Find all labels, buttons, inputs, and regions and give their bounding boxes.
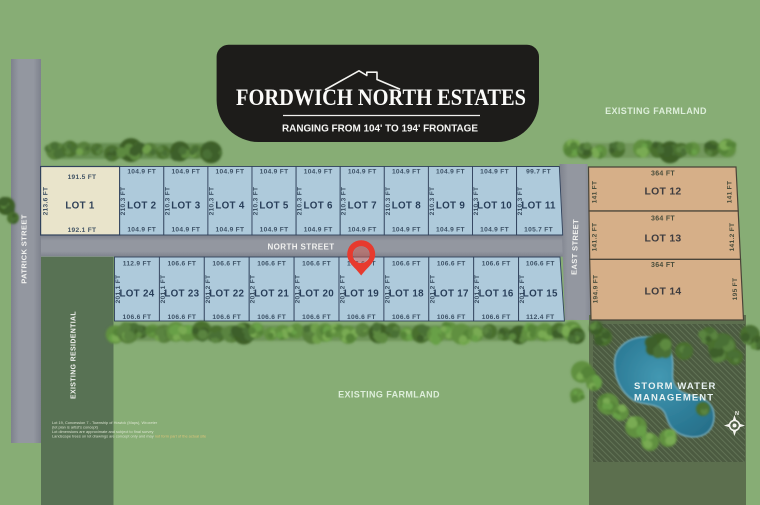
- svg-text:LOT 4: LOT 4: [215, 201, 245, 212]
- svg-text:364 FT: 364 FT: [651, 262, 675, 269]
- svg-text:LOT 5: LOT 5: [259, 201, 289, 212]
- svg-text:104.9 FT: 104.9 FT: [348, 227, 377, 234]
- svg-text:106.6 FT: 106.6 FT: [526, 261, 555, 268]
- svg-text:LOT 22: LOT 22: [209, 289, 244, 300]
- svg-text:106.6 FT: 106.6 FT: [392, 314, 421, 321]
- svg-text:104.9 FT: 104.9 FT: [392, 227, 421, 234]
- svg-text:Landscape trees on lot drawing: Landscape trees on lot drawings are conc…: [52, 434, 206, 439]
- svg-text:LOT 16: LOT 16: [479, 289, 514, 300]
- svg-text:NORTH STREET: NORTH STREET: [267, 243, 334, 252]
- svg-text:LOT 8: LOT 8: [392, 201, 422, 212]
- svg-text:LOT 24: LOT 24: [119, 289, 154, 300]
- svg-text:106.6 FT: 106.6 FT: [257, 261, 286, 268]
- svg-text:LOT 17: LOT 17: [434, 289, 469, 300]
- svg-text:104.9 FT: 104.9 FT: [436, 227, 465, 234]
- svg-text:104.9 FT: 104.9 FT: [216, 169, 245, 176]
- svg-text:FORDWICH NORTH ESTATES: FORDWICH NORTH ESTATES: [236, 85, 526, 111]
- svg-text:104.9 FT: 104.9 FT: [436, 169, 465, 176]
- svg-text:STORM WATER: STORM WATER: [634, 381, 716, 392]
- svg-text:99.7 FT: 99.7 FT: [526, 169, 551, 176]
- svg-text:106.6 FT: 106.6 FT: [123, 314, 152, 321]
- svg-text:104.9 FT: 104.9 FT: [260, 169, 289, 176]
- svg-text:104.9 FT: 104.9 FT: [480, 169, 509, 176]
- svg-text:141 FT: 141 FT: [727, 181, 734, 204]
- svg-text:141.2 FT: 141.2 FT: [592, 223, 599, 252]
- svg-text:106.6 FT: 106.6 FT: [392, 261, 421, 268]
- svg-text:LOT 3: LOT 3: [171, 201, 201, 212]
- svg-text:104.9 FT: 104.9 FT: [304, 227, 333, 234]
- svg-text:EXISTING RESIDENTIAL: EXISTING RESIDENTIAL: [71, 311, 78, 399]
- svg-text:106.6 FT: 106.6 FT: [212, 314, 241, 321]
- svg-text:LOT 2: LOT 2: [127, 201, 157, 212]
- svg-text:LOT 23: LOT 23: [164, 289, 199, 300]
- svg-text:106.6 FT: 106.6 FT: [482, 314, 511, 321]
- svg-text:112.4 FT: 112.4 FT: [526, 314, 554, 321]
- svg-text:LOT 14: LOT 14: [644, 287, 681, 298]
- svg-text:LOT 7: LOT 7: [348, 201, 378, 212]
- svg-text:104.9 FT: 104.9 FT: [127, 227, 156, 234]
- svg-text:104.9 FT: 104.9 FT: [260, 227, 289, 234]
- svg-text:106.6 FT: 106.6 FT: [167, 314, 196, 321]
- svg-text:LOT 10: LOT 10: [477, 201, 512, 212]
- svg-text:106.6 FT: 106.6 FT: [302, 261, 331, 268]
- svg-text:106.6 FT: 106.6 FT: [437, 314, 466, 321]
- svg-text:106.6 FT: 106.6 FT: [167, 261, 196, 268]
- svg-text:104.9 FT: 104.9 FT: [304, 169, 333, 176]
- svg-text:104.9 FT: 104.9 FT: [171, 169, 200, 176]
- svg-text:LOT 9: LOT 9: [436, 201, 466, 212]
- svg-text:LOT 12: LOT 12: [644, 187, 681, 198]
- svg-text:194.9 FT: 194.9 FT: [593, 275, 600, 304]
- svg-text:106.6 FT: 106.6 FT: [302, 314, 331, 321]
- svg-text:106.6 FT: 106.6 FT: [212, 261, 241, 268]
- svg-text:RANGING FROM 104' TO 194' FRON: RANGING FROM 104' TO 194' FRONTAGE: [282, 124, 479, 135]
- svg-text:N: N: [735, 411, 739, 417]
- svg-text:104.9 FT: 104.9 FT: [392, 169, 421, 176]
- svg-text:191.5 FT: 191.5 FT: [68, 174, 97, 181]
- svg-text:LOT 11: LOT 11: [521, 201, 556, 212]
- svg-text:141 FT: 141 FT: [592, 181, 599, 204]
- svg-text:EXISTING FARMLAND: EXISTING FARMLAND: [605, 106, 707, 116]
- svg-text:195 FT: 195 FT: [732, 278, 739, 301]
- svg-text:PATRICK STREET: PATRICK STREET: [20, 214, 29, 284]
- svg-text:104.9 FT: 104.9 FT: [171, 227, 200, 234]
- svg-text:104.9 FT: 104.9 FT: [480, 227, 509, 234]
- svg-text:112.9 FT: 112.9 FT: [123, 261, 151, 268]
- svg-text:106.6 FT: 106.6 FT: [257, 314, 286, 321]
- svg-text:LOT 1: LOT 1: [65, 201, 95, 212]
- svg-text:LOT 18: LOT 18: [389, 289, 424, 300]
- svg-text:104.9 FT: 104.9 FT: [348, 169, 377, 176]
- svg-text:364 FT: 364 FT: [651, 171, 675, 178]
- svg-text:LOT 15: LOT 15: [523, 289, 558, 300]
- svg-text:EXISTING FARMLAND: EXISTING FARMLAND: [338, 390, 440, 400]
- svg-text:106.6 FT: 106.6 FT: [437, 261, 466, 268]
- svg-text:LOT 6: LOT 6: [304, 201, 334, 212]
- svg-text:106.6 FT: 106.6 FT: [482, 261, 511, 268]
- svg-text:105.7 FT: 105.7 FT: [524, 227, 553, 234]
- svg-text:192.1 FT: 192.1 FT: [68, 227, 97, 234]
- svg-text:LOT 21: LOT 21: [254, 289, 289, 300]
- svg-text:104.9 FT: 104.9 FT: [216, 227, 245, 234]
- svg-text:104.9 FT: 104.9 FT: [127, 169, 156, 176]
- svg-text:141.2 FT: 141.2 FT: [729, 223, 736, 252]
- svg-text:LOT 13: LOT 13: [644, 234, 681, 245]
- svg-text:LOT 19: LOT 19: [344, 289, 379, 300]
- svg-text:LOT 20: LOT 20: [299, 289, 334, 300]
- svg-text:MANAGEMENT: MANAGEMENT: [634, 393, 714, 404]
- svg-text:106.6 FT: 106.6 FT: [347, 314, 376, 321]
- svg-text:213.6 FT: 213.6 FT: [43, 187, 50, 216]
- svg-text:364 FT: 364 FT: [651, 216, 675, 223]
